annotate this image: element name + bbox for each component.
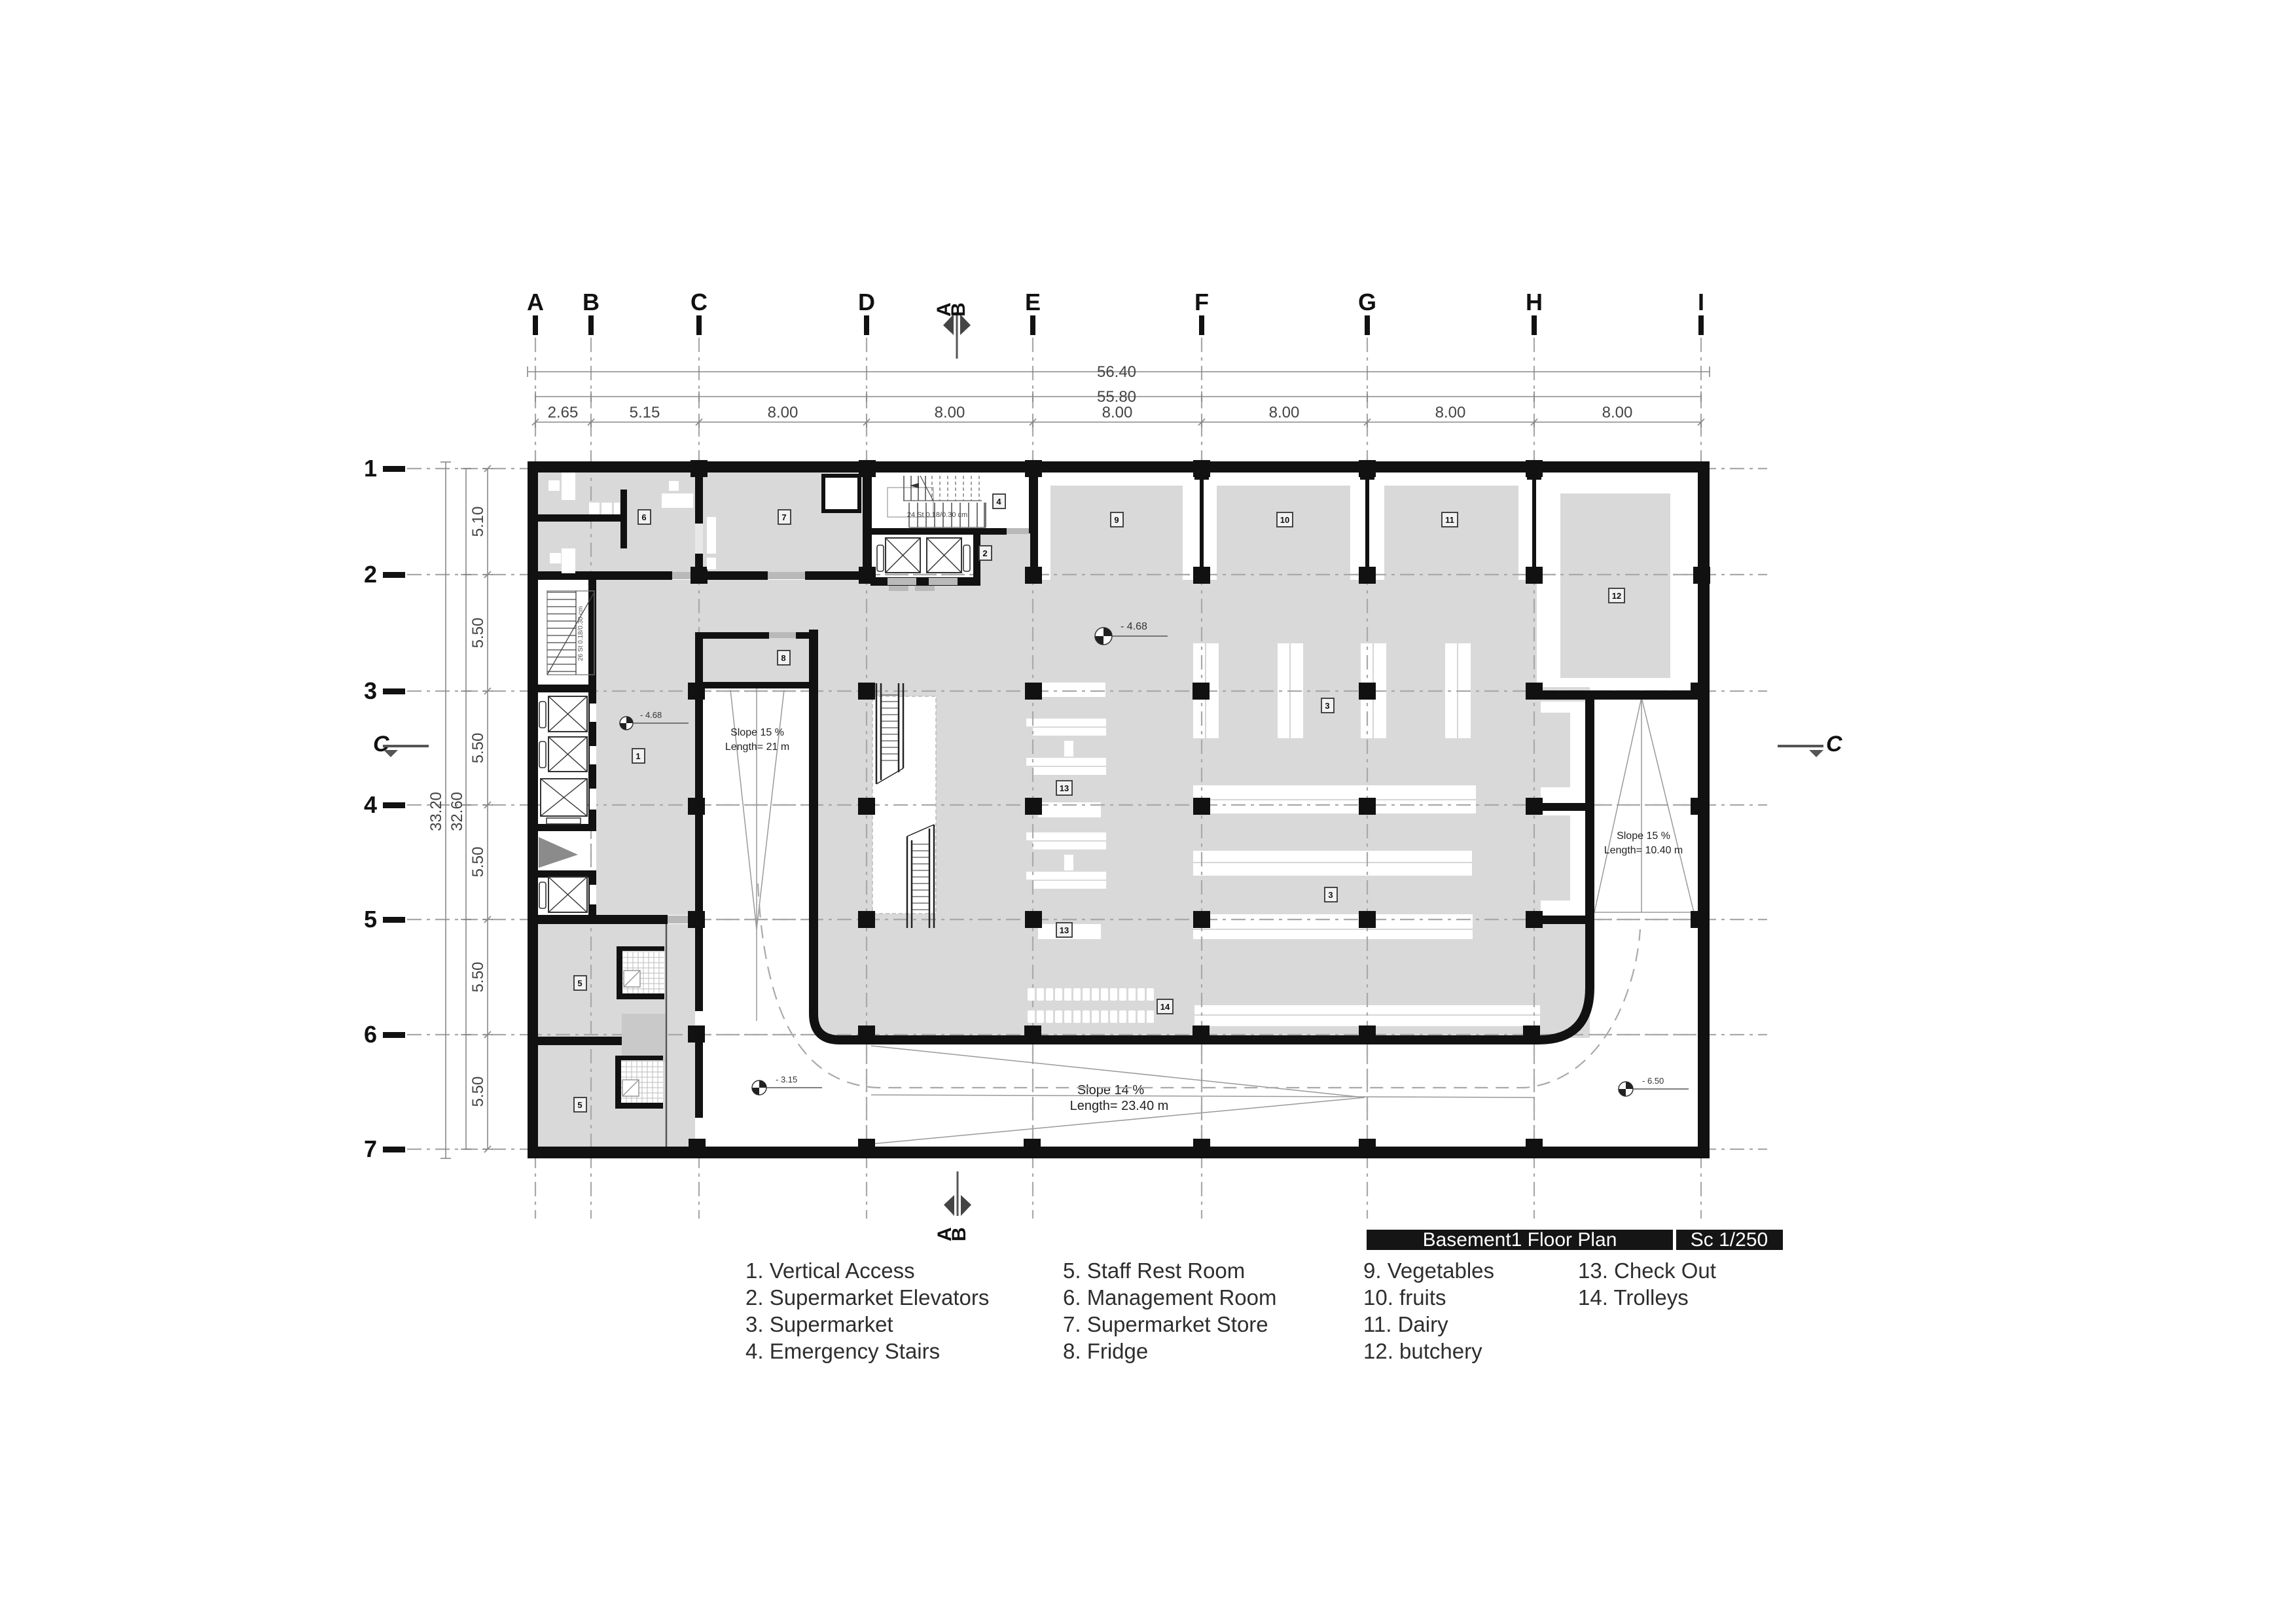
svg-text:3. Supermarket: 3. Supermarket — [745, 1312, 893, 1336]
svg-text:6: 6 — [641, 512, 646, 522]
svg-text:B: B — [948, 302, 969, 317]
svg-text:11. Dairy: 11. Dairy — [1363, 1312, 1448, 1336]
svg-text:7: 7 — [781, 512, 786, 522]
svg-text:5: 5 — [577, 1100, 582, 1110]
svg-text:Slope 15 %: Slope 15 % — [730, 727, 784, 738]
svg-text:3: 3 — [364, 677, 377, 704]
svg-text:5.50: 5.50 — [469, 1077, 487, 1107]
svg-text:5.10: 5.10 — [469, 507, 487, 537]
svg-text:B: B — [948, 1227, 970, 1241]
svg-text:8.00: 8.00 — [768, 404, 798, 421]
svg-text:C: C — [1826, 732, 1842, 757]
svg-text:B: B — [583, 289, 600, 315]
svg-text:5.50: 5.50 — [469, 962, 487, 993]
svg-text:2: 2 — [982, 548, 987, 558]
svg-text:8.00: 8.00 — [1435, 404, 1466, 421]
svg-text:5: 5 — [364, 906, 377, 933]
svg-text:- 4.68: - 4.68 — [1121, 621, 1147, 632]
svg-text:56.40: 56.40 — [1097, 363, 1136, 381]
svg-text:3: 3 — [1325, 701, 1329, 711]
svg-text:Slope 14 %: Slope 14 % — [1077, 1083, 1145, 1097]
svg-text:8.00: 8.00 — [1269, 404, 1300, 421]
svg-text:14: 14 — [1160, 1002, 1170, 1012]
svg-text:33.20: 33.20 — [427, 792, 445, 831]
svg-text:26 St 0.18/0.30 cm: 26 St 0.18/0.30 cm — [577, 606, 584, 661]
svg-text:1. Vertical Access: 1. Vertical Access — [745, 1258, 915, 1283]
svg-text:8.00: 8.00 — [1602, 404, 1633, 421]
svg-text:Basement1 Floor Plan: Basement1 Floor Plan — [1423, 1229, 1617, 1251]
svg-text:Slope 15 %: Slope 15 % — [1617, 830, 1670, 842]
svg-text:2. Supermarket Elevators: 2. Supermarket Elevators — [745, 1285, 989, 1310]
svg-text:24 St 0.18/0.30 cm: 24 St 0.18/0.30 cm — [907, 511, 967, 519]
svg-text:2.65: 2.65 — [548, 404, 579, 421]
svg-text:Sc 1/250: Sc 1/250 — [1691, 1229, 1768, 1251]
svg-text:8: 8 — [781, 653, 785, 663]
svg-text:D: D — [858, 289, 875, 315]
svg-text:4: 4 — [996, 497, 1001, 507]
svg-text:13. Check Out: 13. Check Out — [1578, 1258, 1716, 1283]
svg-text:A: A — [527, 289, 544, 315]
svg-text:4: 4 — [364, 791, 377, 818]
svg-text:5.50: 5.50 — [469, 618, 487, 649]
svg-text:6: 6 — [364, 1021, 377, 1048]
svg-text:F: F — [1194, 289, 1209, 315]
svg-text:8. Fridge: 8. Fridge — [1063, 1339, 1148, 1363]
svg-text:6. Management Room: 6. Management Room — [1063, 1285, 1277, 1310]
svg-text:13: 13 — [1060, 925, 1069, 935]
svg-text:55.80: 55.80 — [1097, 388, 1136, 406]
svg-text:8.00: 8.00 — [1102, 404, 1133, 421]
svg-text:8.00: 8.00 — [935, 404, 965, 421]
svg-text:4. Emergency Stairs: 4. Emergency Stairs — [745, 1339, 940, 1363]
svg-text:Length= 10.40 m: Length= 10.40 m — [1604, 845, 1683, 856]
svg-text:11: 11 — [1445, 515, 1454, 525]
svg-text:13: 13 — [1060, 783, 1069, 793]
svg-text:- 3.15: - 3.15 — [776, 1075, 797, 1084]
svg-text:5.50: 5.50 — [469, 847, 487, 878]
svg-text:Length= 23.40 m: Length= 23.40 m — [1070, 1099, 1169, 1113]
svg-text:32.60: 32.60 — [448, 792, 466, 831]
svg-text:- 4.68: - 4.68 — [640, 710, 662, 720]
svg-text:10: 10 — [1280, 515, 1289, 525]
svg-text:3: 3 — [1328, 890, 1333, 900]
svg-text:5.50: 5.50 — [469, 733, 487, 764]
svg-text:7: 7 — [364, 1135, 377, 1162]
svg-text:12. butchery: 12. butchery — [1363, 1339, 1482, 1363]
svg-text:2: 2 — [364, 561, 377, 588]
svg-text:- 6.50: - 6.50 — [1642, 1076, 1664, 1086]
svg-text:E: E — [1025, 289, 1041, 315]
svg-text:H: H — [1526, 289, 1543, 315]
svg-text:12: 12 — [1612, 591, 1621, 601]
svg-text:1: 1 — [364, 455, 377, 482]
svg-text:C: C — [691, 289, 708, 315]
svg-text:I: I — [1698, 289, 1704, 315]
svg-text:7. Supermarket Store: 7. Supermarket Store — [1063, 1312, 1268, 1336]
svg-text:5. Staff Rest Room: 5. Staff Rest Room — [1063, 1258, 1245, 1283]
svg-text:G: G — [1358, 289, 1376, 315]
svg-text:10. fruits: 10. fruits — [1363, 1285, 1446, 1310]
svg-text:14. Trolleys: 14. Trolleys — [1578, 1285, 1689, 1310]
svg-text:5: 5 — [577, 978, 582, 988]
svg-text:Length= 21 m: Length= 21 m — [725, 741, 789, 753]
svg-text:9: 9 — [1114, 515, 1119, 525]
svg-text:1: 1 — [636, 751, 640, 761]
svg-text:5.15: 5.15 — [630, 404, 660, 421]
svg-text:9. Vegetables: 9. Vegetables — [1363, 1258, 1494, 1283]
